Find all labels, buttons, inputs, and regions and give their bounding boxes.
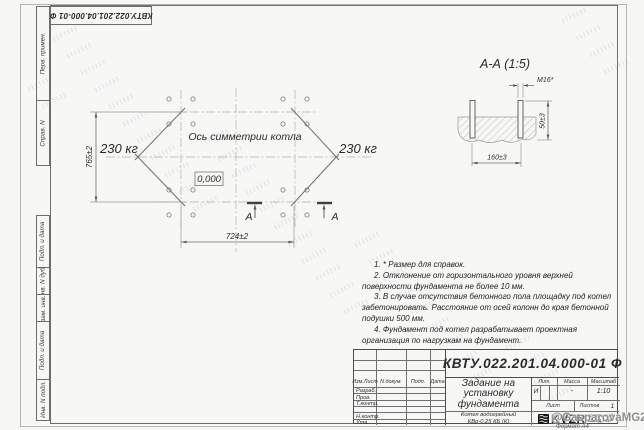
section-letter-left: А — [244, 211, 252, 223]
centerlines — [106, 88, 374, 252]
dim-thread: М16* — [509, 77, 554, 98]
lit-value: И — [532, 388, 540, 395]
load-left-label: 230 кг — [99, 141, 138, 156]
note-2: 2. Отклонение от горизонтального уровня … — [362, 271, 614, 293]
sheets-cell: Листов 1 — [574, 403, 620, 410]
note-4: 4. Фундамент под котел разрабатывает про… — [362, 325, 614, 347]
doc-number: КВТУ.022.201.04.000-01 Ф — [445, 350, 619, 378]
row-utv: Утв. — [356, 420, 369, 426]
lit-label: Лит. — [532, 379, 557, 385]
anchor-bolt-right — [518, 101, 523, 139]
section-title: А-А (1:5) — [479, 57, 530, 71]
product-name: Котел водогрейный КВр-0,25 КБ (К) — [445, 411, 531, 425]
lit-mass-scale-grid: Лит. Масса Масштаб И - 1:10 Лист Листов … — [531, 378, 619, 411]
plan-view: 765±2 724±2 230 кг 230 кг Ось симметрии … — [85, 88, 378, 252]
dim-height-label: 765±2 — [85, 145, 94, 168]
row-prov: Пров. — [356, 395, 371, 401]
product-name-line: КВр-0,25 КБ (К) — [468, 419, 509, 425]
scale-label: Масштаб — [587, 379, 620, 385]
drawing-title: Задание на установку фундамента — [445, 378, 531, 411]
thread-label: М16* — [537, 77, 554, 84]
row-razrab: Разраб. — [356, 388, 376, 394]
col-izm-list: Изм.Лист — [354, 370, 376, 387]
load-right-label: 230 кг — [338, 141, 377, 156]
col-data: Дата — [430, 370, 445, 387]
sheets-label: Листов — [580, 403, 600, 410]
kvzr-logo-icon — [538, 414, 549, 424]
section-letter-right: А — [330, 211, 338, 223]
symmetry-axis-label: Ось симметрии котла — [188, 131, 301, 143]
note-3: 3. В случае отсутствия бетонного пола пл… — [362, 292, 614, 324]
col-n-dokum: N докум. — [376, 370, 406, 387]
author-watermark: @GasparovaMG2021 — [551, 412, 644, 424]
anchor-bolt-left — [470, 101, 475, 139]
dim-bolt-span: 160±3 — [472, 143, 521, 167]
row-tkontr: Т.контр. — [356, 401, 379, 407]
level-mark: 0,000 — [195, 172, 223, 186]
dim-width-label: 724±2 — [226, 232, 249, 241]
mass-value: - — [557, 388, 587, 395]
row-nkontr: Н.контр. — [356, 414, 380, 420]
drawing-sheet: КВТУ.022.201.04.000-01 Ф Перв. примен. С… — [0, 0, 644, 430]
mass-label: Масса — [557, 379, 587, 385]
revision-header-row: Изм.Лист N докум. Подп. Дата — [354, 370, 445, 387]
dim-bolt-span-label: 160±3 — [487, 155, 507, 162]
note-1: 1. * Размер для справок. — [362, 260, 614, 271]
format-label: Формат А4 — [556, 424, 589, 430]
level-mark-value: 0,000 — [197, 174, 221, 185]
sheet-label: Лист — [532, 403, 574, 409]
col-podp: Подп. — [406, 370, 430, 387]
dim-width: 724±2 — [181, 206, 294, 248]
scale-value: 1:10 — [587, 388, 620, 395]
sheets-value: 1 — [611, 403, 615, 410]
drawing-title-line: фундамента — [458, 400, 519, 411]
section-view: А-А (1:5) М16* — [457, 57, 554, 167]
notes-block: 1. * Размер для справок. 2. Отклонение о… — [362, 260, 614, 346]
dim-bolt-height-label: 50±3 — [540, 113, 547, 129]
